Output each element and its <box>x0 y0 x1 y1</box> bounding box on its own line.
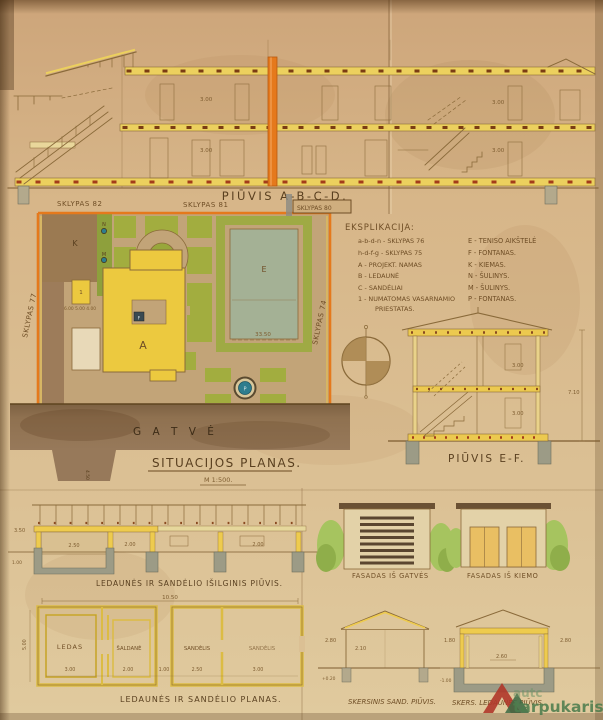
yard-facade-roof <box>456 503 551 509</box>
legend-item: A - PROJEKT. NAMAS <box>358 261 422 269</box>
well-n-marker <box>101 228 106 233</box>
legend-item: E - TENISO AIKŠTELĖ <box>468 236 536 245</box>
legend-item: h-d-f-g - SKLYPAS 75 <box>358 249 422 257</box>
plan-dim-b0: 3.00 <box>65 667 76 673</box>
tennis-court-label: E <box>261 265 266 274</box>
room-sandelis-1: SANDĖLIS <box>184 645 211 652</box>
cs1-dim-base: +0.20 <box>322 676 336 682</box>
annex-label: 1 <box>79 290 83 296</box>
facade-street-title: FASADAS IŠ GATVĖS <box>352 571 429 580</box>
cs2-dim-right: 2.80 <box>560 638 571 644</box>
legend-item: 1 - NUMATOMAS VASARNAMIO <box>358 295 455 303</box>
legend-item: M - ŠULINYS. <box>468 283 510 292</box>
pencil-mark <box>286 194 292 216</box>
door-gap <box>299 636 305 652</box>
driveway <box>52 450 116 481</box>
plot-80-label: SKLYPAS 80 <box>297 205 332 212</box>
drawing-sheet: 3.00 3.00 3.00 3.00 PIŪVIS A-B-C-D. N M <box>0 0 603 720</box>
ls-dim-r3: 2.00 <box>252 542 263 548</box>
watermark-label: tarpukaris <box>513 698 603 716</box>
legend-item: N - ŠULINYS. <box>468 271 509 280</box>
facade-yard-title: FASADAS IŠ KIEMO <box>467 571 538 580</box>
section-ef-title: PIŪVIS E-F. <box>448 452 526 465</box>
cs1-dim-in: 2.10 <box>355 646 366 652</box>
entrance-step <box>150 370 176 381</box>
room-ledas: LEDAS <box>57 643 83 651</box>
ls-dim-r1: 2.50 <box>68 543 79 549</box>
cs2-dim-base: -1.00 <box>440 678 452 684</box>
ef-dim-floor1: 3.00 <box>512 411 524 417</box>
shed-building <box>72 328 100 370</box>
room-saldane: ŠALDANĖ <box>117 645 143 652</box>
legend-item: K - KIEMAS. <box>468 261 506 269</box>
cs2-dim-left: 1.80 <box>444 638 455 644</box>
drawing-canvas: 3.00 3.00 3.00 3.00 PIŪVIS A-B-C-D. N M <box>0 0 603 720</box>
site-plan-scale: M 1:500. <box>204 476 232 484</box>
dim-floor1-right: 3.00 <box>492 148 505 154</box>
dim-floor2-left: 3.00 <box>200 97 213 103</box>
plan-dim-b3: 2.50 <box>192 667 203 673</box>
legend-title: EKSPLIKACIJA: <box>345 223 415 233</box>
cs2-dim-in: 2.60 <box>496 654 507 660</box>
ef-dim-floor2: 3.00 <box>512 363 524 369</box>
site-plan: N M E 33.50 <box>10 194 351 485</box>
plan-dim-b1: 2.00 <box>123 667 134 673</box>
site-plan-title: SITUACIJOS PLANAS. <box>152 456 302 470</box>
cross-section-sand-title: SKERSINIS SAND. PIŪVIS. <box>348 697 436 706</box>
cs1-dim-left: 2.80 <box>325 638 336 644</box>
courtyard-label: K <box>72 239 78 248</box>
well-m-label: M <box>102 252 106 258</box>
main-house-label: A <box>139 339 147 352</box>
street-label: G A T V Ė <box>133 425 218 438</box>
long-section-title: LEDAUNĖS IR SANDĖLIO IŠILGINIS PIŪVIS. <box>96 579 283 588</box>
legend-item: B - LEDAUNĖ <box>358 271 399 280</box>
ls-dim-d: 1.00 <box>12 560 22 566</box>
legend-item: a-b-d-n - SKLYPAS 76 <box>358 237 424 245</box>
legend-item: C - SANDĖLIAI <box>358 283 403 292</box>
driveway-dim: 4.50 <box>84 470 90 480</box>
plan-dim-top: 10.50 <box>162 595 178 601</box>
well-n-label: N <box>102 222 106 228</box>
dim-floor1-left: 3.00 <box>200 148 213 154</box>
dim-floor2-right: 3.00 <box>492 100 505 106</box>
plan-dim-b4: 3.00 <box>253 667 264 673</box>
ls-dim-h: 3.50 <box>14 528 25 534</box>
plan-dim-left: 5.00 <box>22 639 28 650</box>
plot-81-label: SKLYPAS 81 <box>183 201 228 209</box>
plan-dim-b2: 1.00 <box>159 667 170 673</box>
legend-item: P - FONTANAS. <box>468 295 516 303</box>
street-facade-roof <box>339 503 435 509</box>
tennis-court: E 33.50 <box>216 216 312 352</box>
buildings-dims: 6.00 5.00 4.00 <box>64 306 96 312</box>
well-m-marker <box>101 257 106 262</box>
legend-item: PRIESTATAS. <box>375 305 414 313</box>
ef-dim-total: 7.10 <box>568 390 580 396</box>
plot-82-label: SKLYPAS 82 <box>57 200 102 208</box>
small-fountain-label: F <box>138 316 141 322</box>
room-sandelis-2: SANDĖLIS <box>249 645 276 652</box>
ls-dim-r2: 2.00 <box>124 542 135 548</box>
legend-item: F - FONTANAS. <box>468 249 516 257</box>
chimney <box>268 57 277 186</box>
fountain-label: P <box>243 387 246 393</box>
tennis-dim: 33.50 <box>255 332 271 338</box>
icehouse-plan-title: LEDAUNĖS IR SANDĖLIO PLANAS. <box>120 694 282 704</box>
